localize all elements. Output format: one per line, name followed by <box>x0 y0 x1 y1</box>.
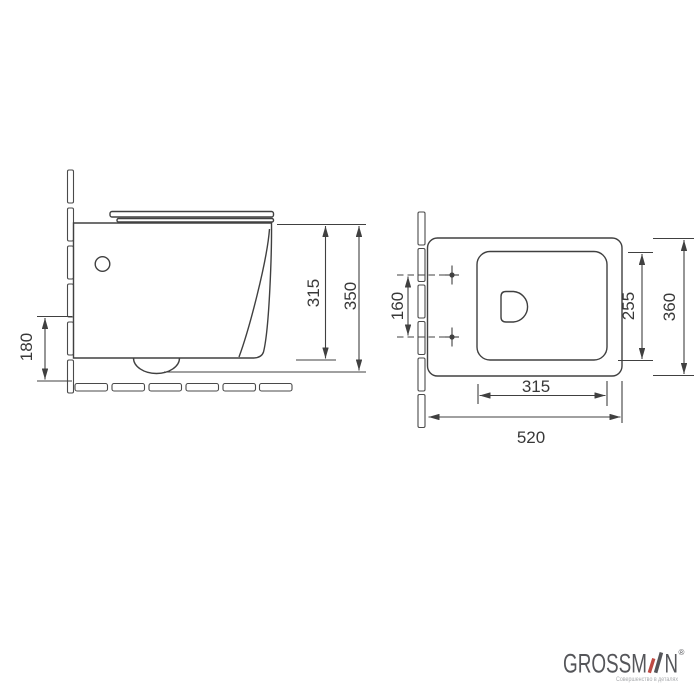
dimension-drain-height: 180 <box>17 317 72 382</box>
toilet-body-outline <box>74 223 272 358</box>
dim-label-180: 180 <box>17 333 36 361</box>
side-view: 180 315 350 <box>17 170 366 393</box>
dimension-bowl-depth: 255 <box>618 253 653 361</box>
wall-hatch-right <box>418 212 425 428</box>
dim-label-520: 520 <box>517 428 545 447</box>
flush-outlet-shape <box>501 292 528 323</box>
seat-lid-lower <box>117 219 274 223</box>
drain-dome <box>134 358 180 373</box>
brand-wordmark-left: GROSSM <box>563 649 647 679</box>
brand-tagline: Совершенство в деталях <box>616 676 679 683</box>
bowl-front-edge <box>239 229 270 357</box>
brand-letter-a-accent-stroke <box>649 659 654 673</box>
registered-trademark: ® <box>679 648 685 657</box>
fixing-hole <box>95 257 110 272</box>
brand-wordmark-right: N <box>665 649 679 679</box>
technical-drawing: 180 315 350 <box>0 0 700 700</box>
dimension-overall-depth: 360 <box>653 239 694 376</box>
seat-lid-top <box>110 212 274 218</box>
dim-label-315-side: 315 <box>304 279 323 307</box>
top-view: 160 255 360 315 520 <box>388 212 694 447</box>
wall-hatch-left <box>68 170 74 393</box>
toilet-plan-outline <box>428 238 623 376</box>
dim-label-350: 350 <box>341 282 360 310</box>
dim-label-315-top: 315 <box>522 377 550 396</box>
dim-label-360: 360 <box>660 293 679 321</box>
brand-logo: GROSSM N ® Совершенство в деталях <box>563 648 685 683</box>
brand-letter-a-main-stroke <box>656 653 662 673</box>
floor-hatch <box>75 384 292 392</box>
dim-label-255: 255 <box>619 292 638 320</box>
dimension-overall-height: 350 <box>341 226 360 371</box>
dimension-hole-spacing: 160 <box>388 277 408 336</box>
bowl-opening <box>477 252 607 361</box>
dimension-bowl-width: 315 <box>478 377 607 406</box>
dim-label-160: 160 <box>388 292 407 320</box>
